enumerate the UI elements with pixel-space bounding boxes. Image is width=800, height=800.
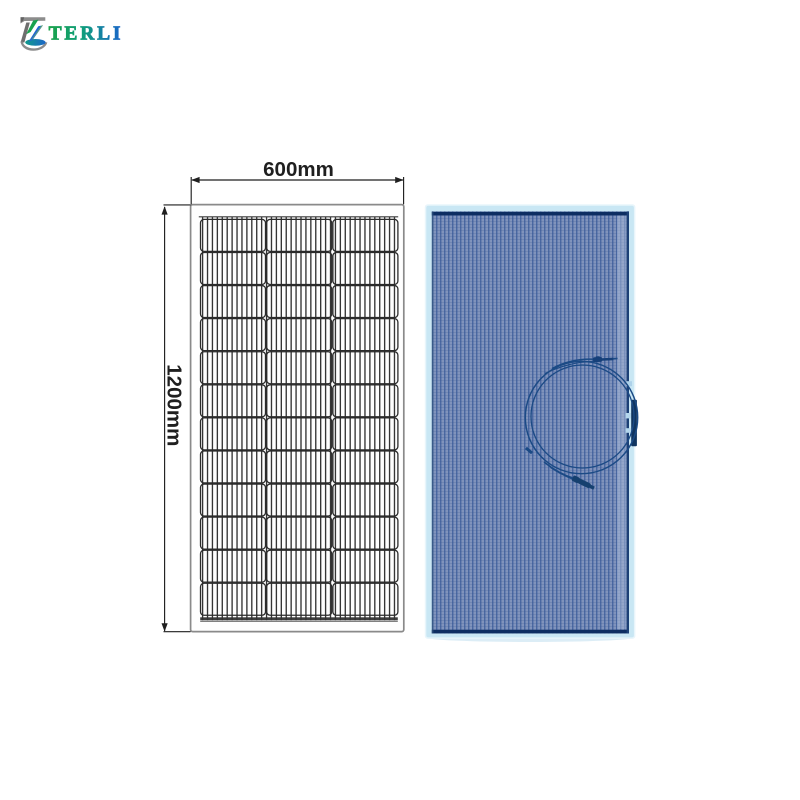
svg-text:1200mm: 1200mm <box>162 364 185 446</box>
svg-text:600mm: 600mm <box>263 158 334 181</box>
svg-text:TERLI: TERLI <box>49 24 124 45</box>
